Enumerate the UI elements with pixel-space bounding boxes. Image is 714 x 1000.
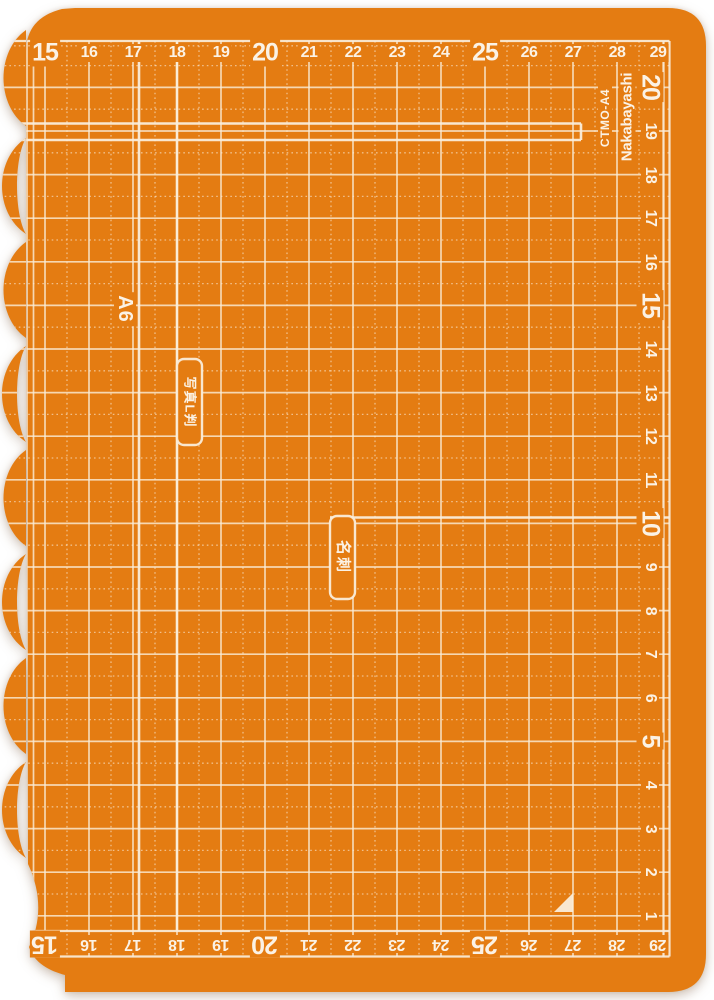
ruler-number: 6	[641, 692, 659, 704]
ruler-number: 20	[637, 72, 664, 102]
ruler-number: 16	[79, 935, 100, 953]
hinge-lobe	[4, 450, 27, 546]
hinge-lobe	[4, 242, 27, 338]
ruler-number: 7	[641, 648, 659, 660]
ruler-number: 3	[641, 822, 659, 834]
ruler-number: 18	[641, 164, 659, 185]
label-photo-l-size: 写真L判	[183, 377, 196, 428]
ruler-number: 12	[641, 426, 659, 447]
ruler-number: 26	[519, 935, 540, 953]
ruler-number: 5	[637, 733, 664, 750]
hinge-lobe	[2, 346, 26, 442]
ruler-number: 23	[387, 44, 408, 62]
ruler-number: 20	[250, 931, 280, 958]
ruler-number: 1	[641, 910, 659, 922]
brand-logo-text: Nakabayashi	[619, 70, 636, 164]
ruler-number: 14	[641, 339, 659, 360]
hinge-wave-edge	[2, 30, 26, 858]
ruler-number: 8	[641, 604, 659, 616]
ruler-number: 10	[637, 508, 664, 538]
ruler-number: 28	[607, 44, 628, 62]
mat-shape	[26, 8, 706, 992]
ruler-number: 22	[343, 935, 364, 953]
ruler-number: 27	[563, 935, 584, 953]
cutting-mat-photo: 151617181920212223242526272829 201918171…	[0, 0, 714, 1000]
ruler-number: 4	[641, 779, 659, 791]
ruler-number: 19	[211, 935, 232, 953]
ruler-number: 11	[641, 470, 659, 490]
ruler-number: 29	[648, 44, 669, 62]
ruler-number: 17	[641, 208, 659, 229]
ruler-number: 17	[123, 935, 144, 953]
ruler-number: 15	[30, 40, 60, 67]
ruler-number: 26	[519, 44, 540, 62]
ruler-number: 20	[250, 40, 280, 67]
label-business-card: 名刺	[335, 540, 350, 574]
ruler-number: 28	[607, 935, 628, 953]
ruler-number: 24	[431, 44, 452, 62]
ruler-number: 2	[641, 866, 659, 878]
ruler-number: 24	[431, 935, 452, 953]
ruler-number: 15	[637, 290, 664, 320]
ruler-number: 19	[211, 44, 232, 62]
ruler-number: 29	[648, 935, 669, 953]
hinge-lobe	[2, 762, 26, 858]
ruler-number: 25	[470, 40, 500, 67]
ruler-number: 23	[387, 935, 408, 953]
hinge-lobe	[4, 30, 27, 126]
ruler-number: 13	[641, 382, 659, 403]
ruler-number: 17	[123, 44, 144, 62]
ruler-number: 18	[167, 44, 188, 62]
ruler-number: 22	[343, 44, 364, 62]
ruler-number: 21	[299, 935, 320, 953]
ruler-number: 9	[641, 561, 659, 573]
ruler-number: 15	[30, 931, 60, 958]
brand-model-text: CTMO-A4	[598, 86, 612, 150]
ruler-number: 16	[641, 251, 659, 272]
hinge-lobe	[4, 658, 27, 754]
hinge-lobe	[2, 554, 26, 650]
label-a6: A6	[114, 292, 136, 326]
ruler-number: 27	[563, 44, 584, 62]
ruler-number: 21	[299, 44, 320, 62]
ruler-number: 25	[470, 931, 500, 958]
ruler-number: 19	[641, 121, 659, 142]
ruler-number: 18	[167, 935, 188, 953]
ruler-number: 16	[79, 44, 100, 62]
hinge-lobe	[2, 138, 26, 234]
